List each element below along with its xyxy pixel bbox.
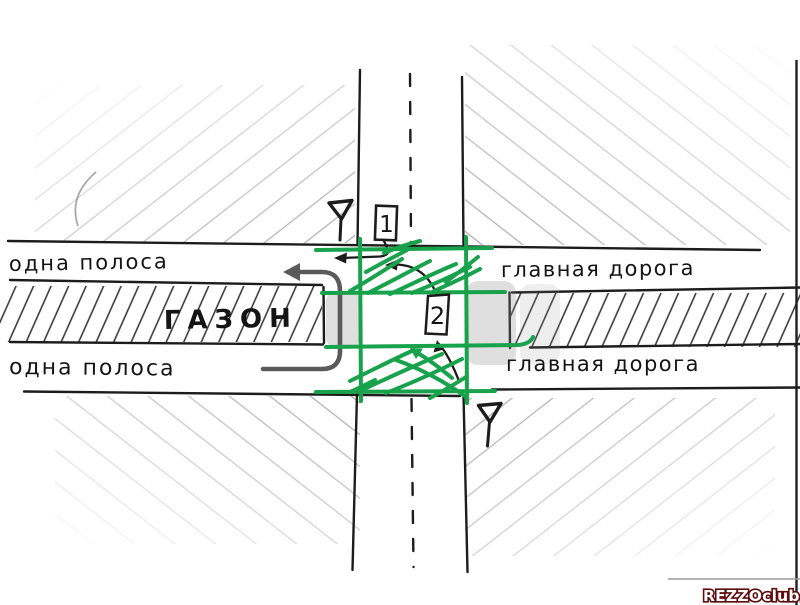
hatch-bottom-right [465, 398, 775, 556]
green-horizontal-4 [316, 391, 495, 392]
label-median-gazon: ГАЗОН [164, 304, 299, 336]
hatch-top-left [35, 85, 355, 243]
hatch-bottom-left [55, 396, 360, 544]
sketch-page: 1 2 одна полоса одна полоса главная доро… [0, 0, 800, 605]
label-main-road-bottom: главная дорога [506, 352, 700, 376]
median-end-cap-left [324, 287, 325, 343]
vehicle-1: 1 [375, 206, 397, 241]
watermark: REZZOclub.ru [703, 587, 800, 605]
label-lane-bottom: одна полоса [9, 355, 176, 381]
vertical-road-right-edge-top [462, 77, 464, 246]
vehicle-2-number: 2 [430, 302, 445, 330]
sign-pole [340, 219, 341, 240]
label-lane-top: одна полоса [9, 249, 169, 276]
highlight-left-median-end [326, 292, 360, 347]
vehicle-2: 2 [426, 295, 450, 335]
vehicle-1-number: 1 [379, 212, 394, 238]
hatch-top-right [465, 45, 790, 245]
label-main-road-top: главная дорога [501, 256, 695, 282]
intersection-sketch: 1 2 одна полоса одна полоса главная доро… [0, 0, 800, 605]
sign-pole [488, 422, 490, 446]
